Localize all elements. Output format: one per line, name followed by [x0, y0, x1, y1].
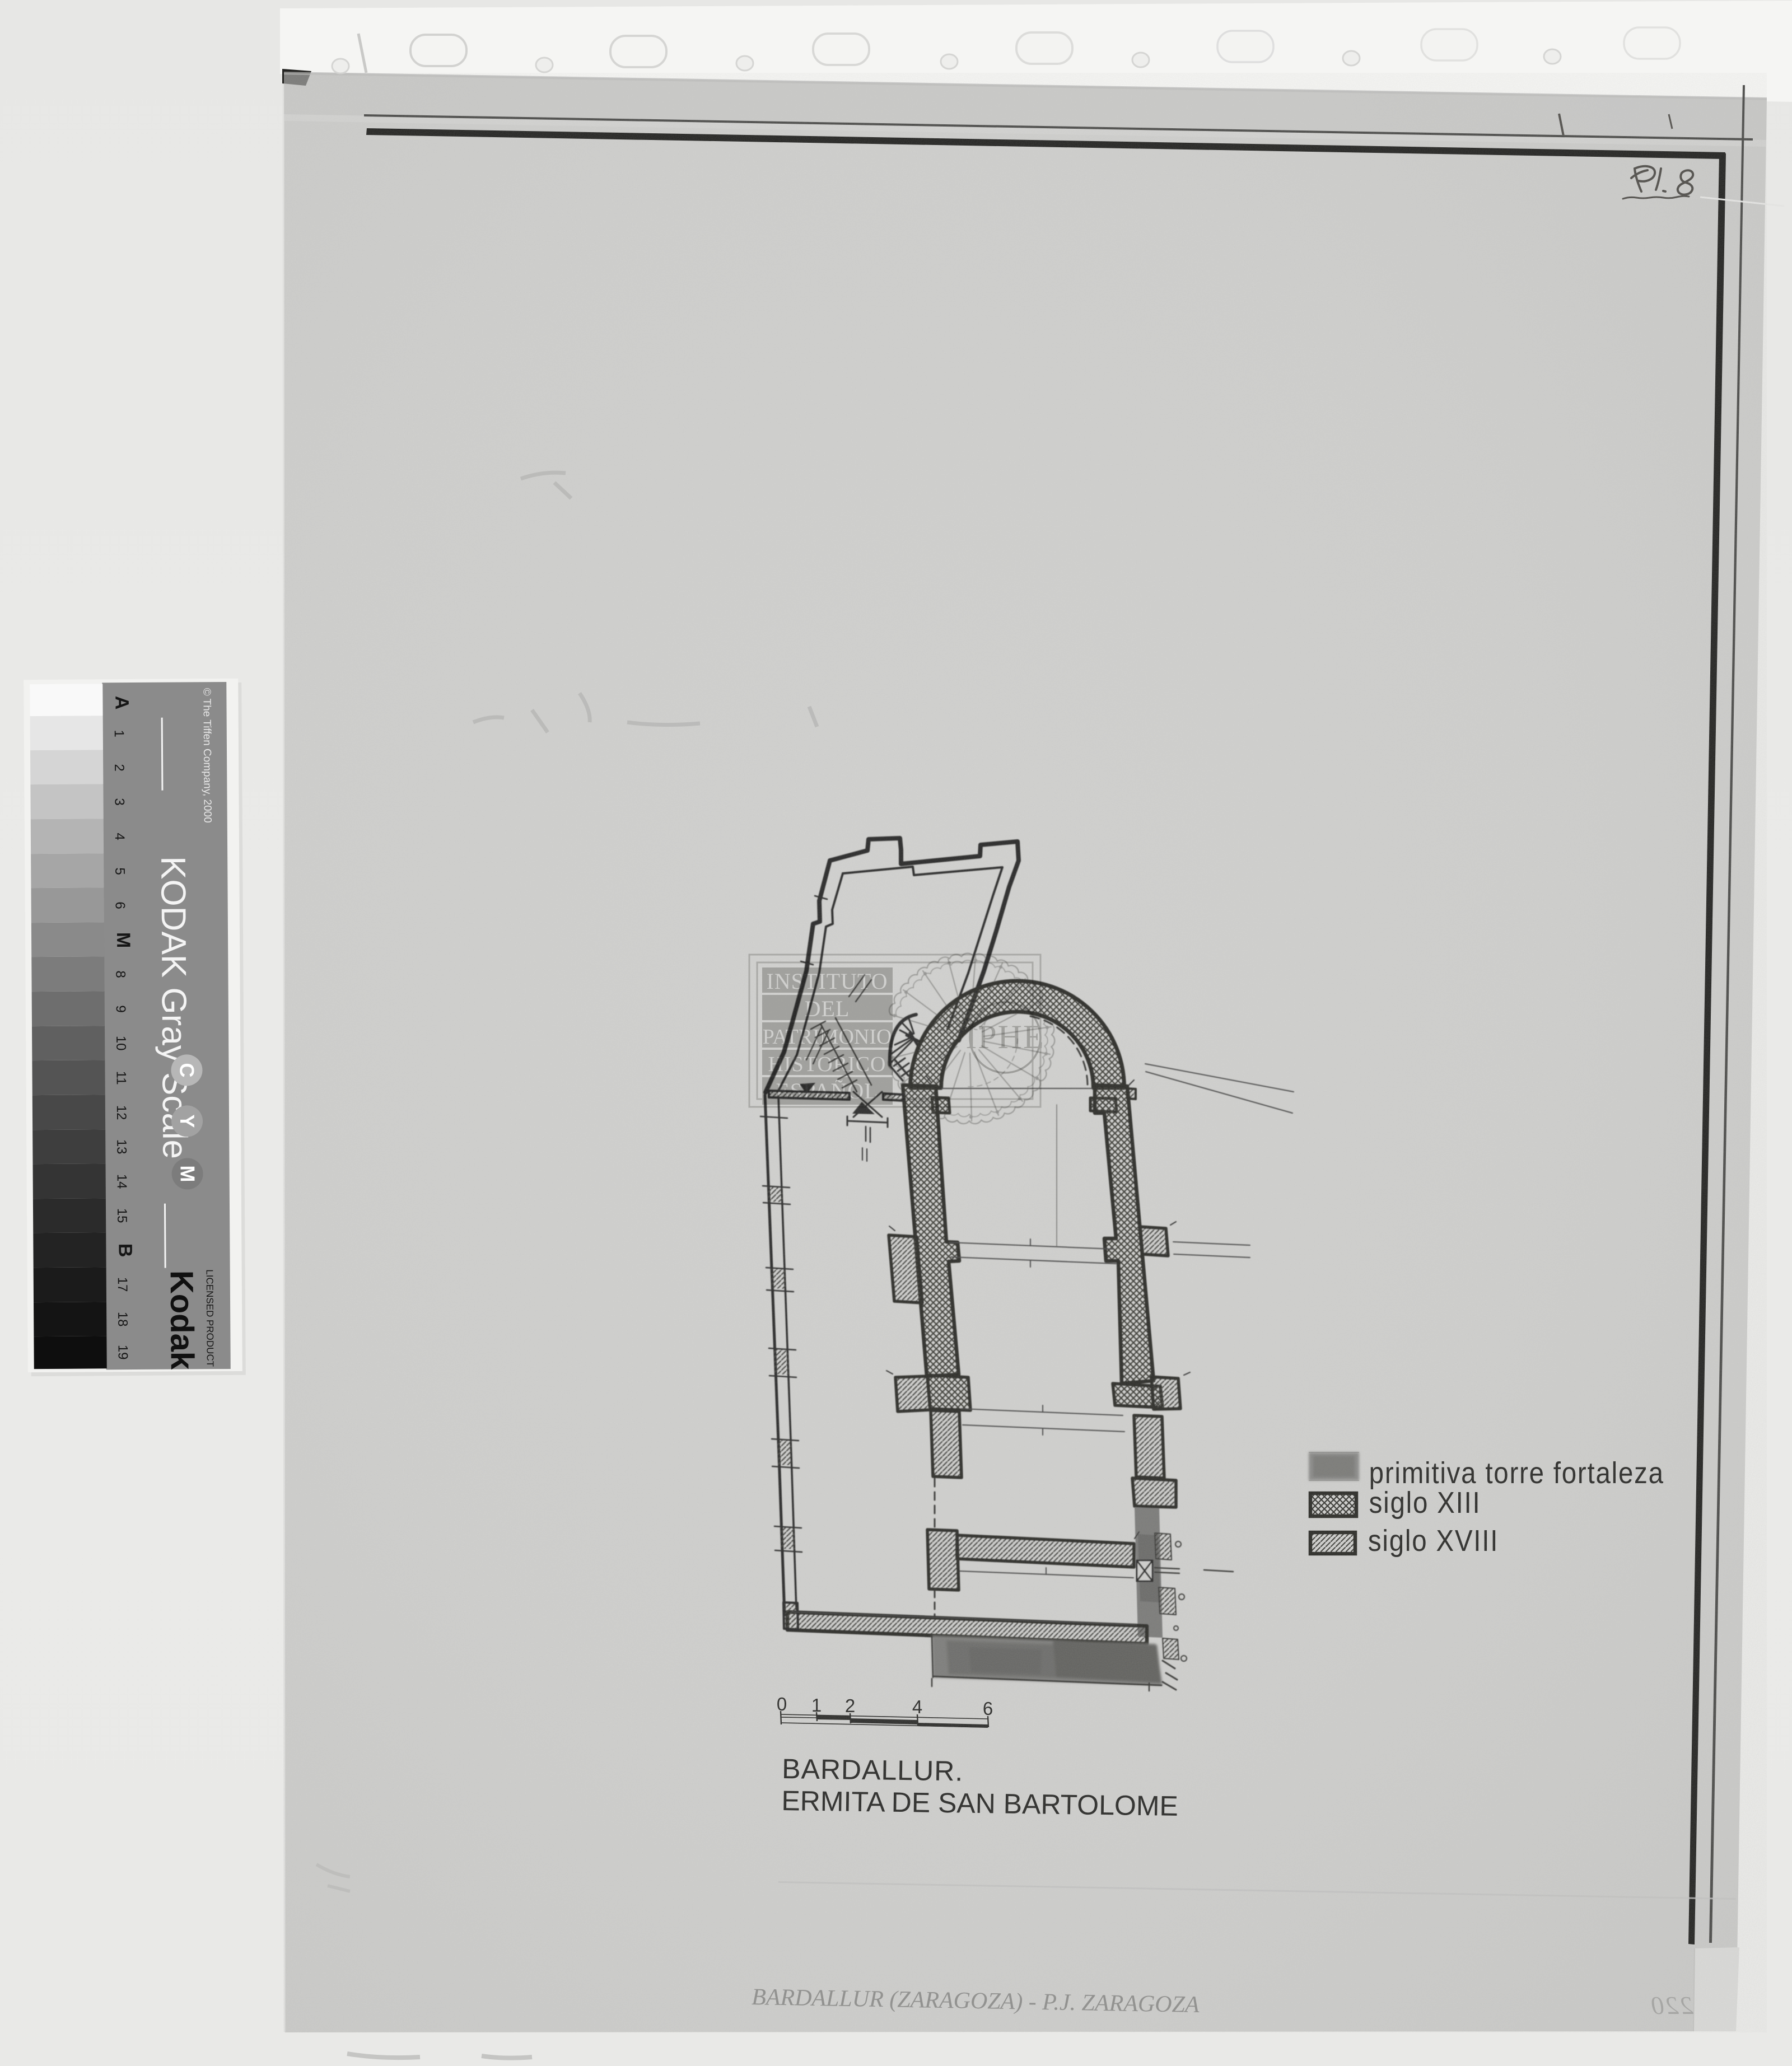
svg-text:8: 8: [113, 970, 128, 978]
svg-text:18: 18: [115, 1312, 130, 1327]
svg-text:3: 3: [112, 798, 127, 806]
svg-text:1: 1: [111, 730, 127, 737]
svg-text:© The Tiffen Company, 2000: © The Tiffen Company, 2000: [200, 688, 213, 823]
svg-text:9: 9: [113, 1005, 128, 1013]
svg-text:Kodak: Kodak: [164, 1270, 200, 1370]
svg-text:17: 17: [115, 1277, 130, 1292]
svg-text:B: B: [114, 1244, 136, 1258]
svg-text:14: 14: [114, 1174, 129, 1189]
svg-text:Y: Y: [176, 1114, 199, 1128]
svg-text:10: 10: [113, 1036, 128, 1051]
svg-text:M: M: [113, 932, 134, 948]
svg-text:2: 2: [111, 764, 127, 772]
svg-text:19: 19: [115, 1345, 130, 1360]
svg-text:LICENSED PRODUCT: LICENSED PRODUCT: [204, 1269, 216, 1367]
svg-text:C: C: [175, 1063, 198, 1077]
svg-text:A: A: [111, 696, 132, 710]
svg-text:M: M: [176, 1165, 199, 1182]
svg-text:11: 11: [114, 1071, 129, 1085]
svg-text:13: 13: [114, 1139, 129, 1154]
svg-text:5: 5: [112, 867, 127, 875]
svg-text:15: 15: [114, 1208, 129, 1223]
svg-text:6: 6: [113, 901, 128, 909]
svg-text:12: 12: [114, 1105, 129, 1120]
svg-text:4: 4: [112, 833, 127, 840]
